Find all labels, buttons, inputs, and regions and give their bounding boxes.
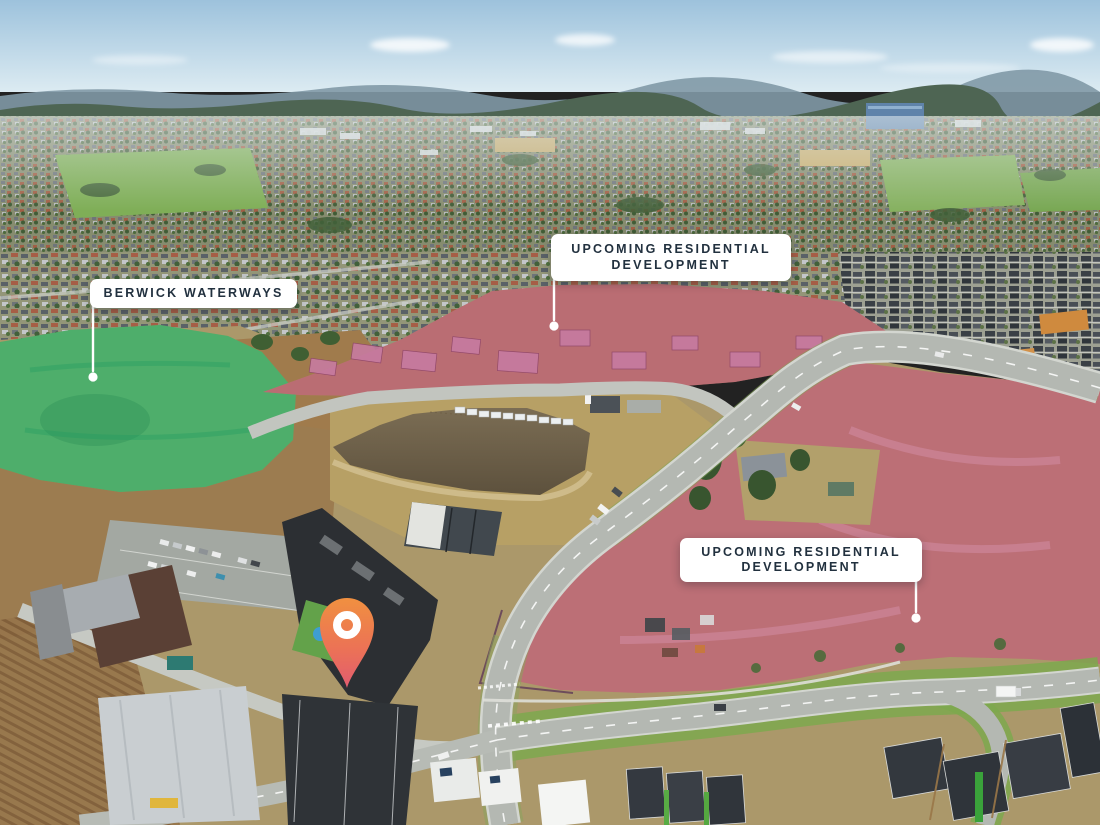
dark-townhouse-row (626, 767, 745, 825)
storefront-sign (167, 656, 193, 670)
sky (0, 0, 1100, 92)
sales-office (590, 396, 620, 413)
aerial-photo-map: BERWICK WATERWAYS UPCOMING RESIDENTIAL D… (0, 0, 1100, 825)
leader-dot-berwick (88, 372, 97, 381)
aerial-photo (0, 0, 1100, 825)
lower-white-building (98, 686, 260, 825)
leader-dot-dev-north (549, 321, 558, 330)
distant-suburb (0, 103, 1100, 260)
leader-dot-dev-east (911, 613, 920, 622)
label-upcoming-development-east: UPCOMING RESIDENTIAL DEVELOPMENT (680, 538, 922, 582)
location-pin-icon (315, 594, 379, 692)
overlay-green-berwick-waterways (0, 325, 296, 492)
label-berwick-waterways: BERWICK WATERWAYS (90, 279, 297, 308)
label-upcoming-development-north: UPCOMING RESIDENTIAL DEVELOPMENT (551, 234, 791, 281)
